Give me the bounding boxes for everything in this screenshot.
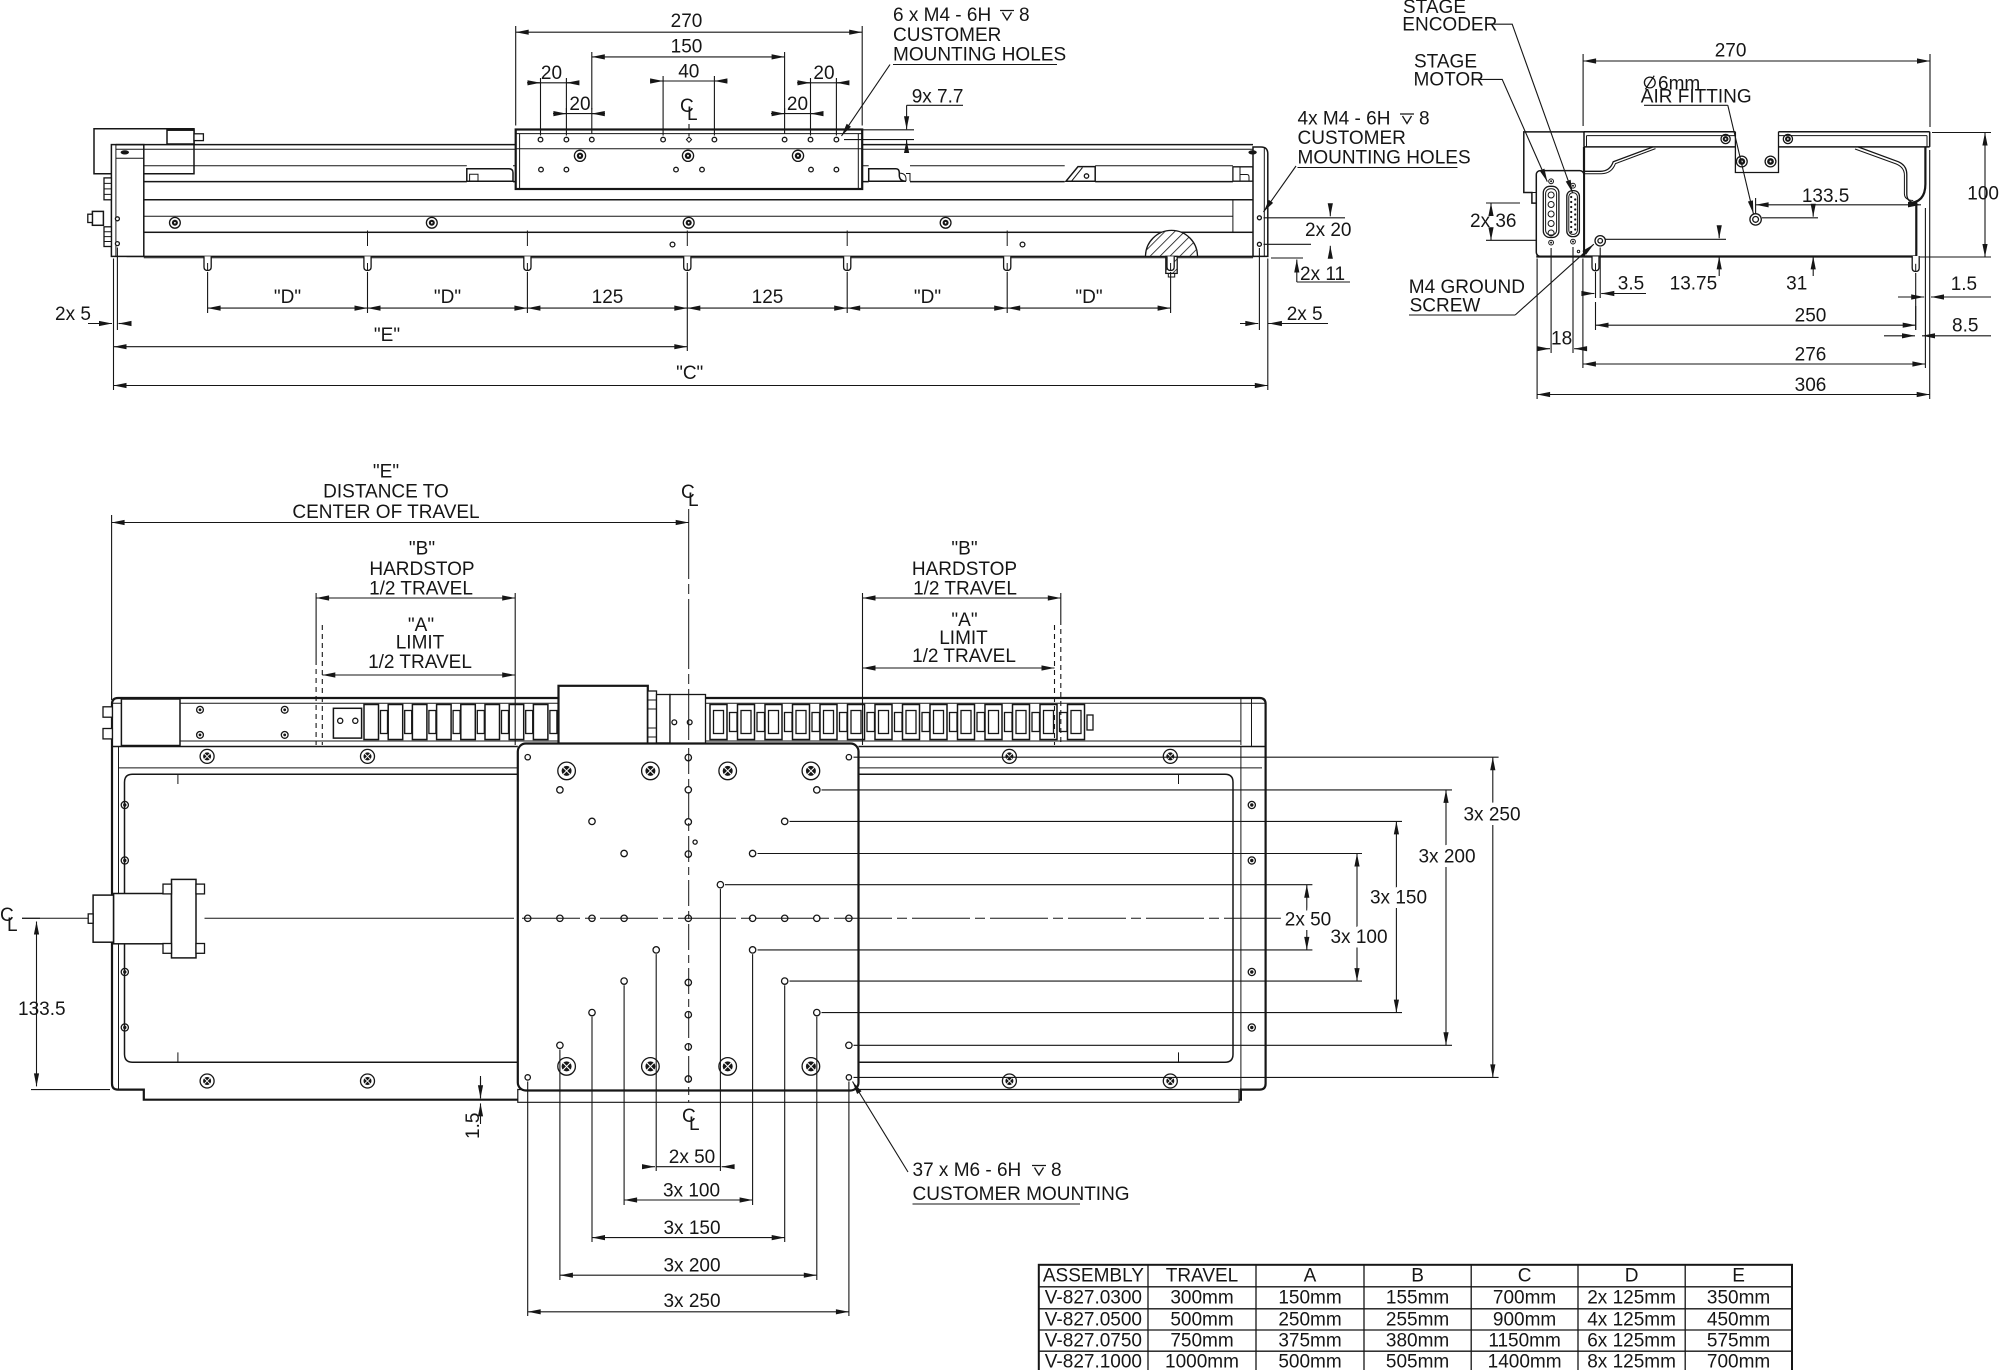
svg-text:750mm: 750mm bbox=[1170, 1331, 1233, 1352]
svg-text:900mm: 900mm bbox=[1493, 1309, 1556, 1330]
svg-text:31: 31 bbox=[1786, 274, 1807, 295]
svg-text:ENCODER: ENCODER bbox=[1402, 15, 1497, 36]
svg-text:AIR FITTING: AIR FITTING bbox=[1641, 87, 1752, 108]
svg-text:2x 20: 2x 20 bbox=[1305, 220, 1351, 241]
svg-text:500mm: 500mm bbox=[1278, 1351, 1341, 1370]
svg-text:155mm: 155mm bbox=[1386, 1288, 1449, 1309]
svg-text:100: 100 bbox=[1967, 184, 1999, 205]
svg-text:V-827.0500: V-827.0500 bbox=[1045, 1309, 1142, 1330]
svg-text:L: L bbox=[7, 915, 18, 936]
svg-text:MOTOR: MOTOR bbox=[1414, 70, 1484, 91]
svg-text:133.5: 133.5 bbox=[18, 999, 66, 1020]
svg-text:700mm: 700mm bbox=[1493, 1288, 1556, 1309]
svg-text:1400mm: 1400mm bbox=[1488, 1351, 1562, 1370]
svg-text:1/2 TRAVEL: 1/2 TRAVEL bbox=[912, 646, 1016, 667]
svg-text:1.5: 1.5 bbox=[463, 1113, 484, 1139]
svg-text:V-827.0300: V-827.0300 bbox=[1045, 1288, 1142, 1309]
svg-text:"E": "E" bbox=[374, 325, 400, 346]
svg-text:6 x M4 - 6H: 6 x M4 - 6H bbox=[893, 5, 991, 26]
svg-text:276: 276 bbox=[1795, 345, 1827, 366]
svg-text:20: 20 bbox=[541, 63, 562, 84]
svg-text:4x M4 - 6H: 4x M4 - 6H bbox=[1298, 109, 1391, 130]
svg-text:500mm: 500mm bbox=[1170, 1309, 1233, 1330]
svg-text:3x 250: 3x 250 bbox=[1463, 805, 1520, 826]
svg-text:"C": "C" bbox=[676, 363, 703, 384]
svg-text:L: L bbox=[687, 104, 698, 125]
svg-text:8.5: 8.5 bbox=[1952, 316, 1978, 337]
svg-text:9x 7.7: 9x 7.7 bbox=[912, 87, 964, 108]
svg-text:250: 250 bbox=[1795, 306, 1827, 327]
svg-text:TRAVEL: TRAVEL bbox=[1166, 1266, 1239, 1287]
svg-text:306: 306 bbox=[1795, 375, 1827, 396]
svg-text:DISTANCE TO: DISTANCE TO bbox=[323, 482, 449, 503]
svg-text:2x 5: 2x 5 bbox=[55, 304, 91, 325]
svg-text:A: A bbox=[1304, 1266, 1317, 1287]
svg-text:20: 20 bbox=[787, 94, 808, 115]
svg-text:505mm: 505mm bbox=[1386, 1351, 1449, 1370]
svg-text:8: 8 bbox=[1419, 109, 1430, 130]
svg-text:CENTER OF TRAVEL: CENTER OF TRAVEL bbox=[292, 502, 479, 523]
svg-text:3x 200: 3x 200 bbox=[663, 1256, 720, 1277]
svg-text:LIMIT: LIMIT bbox=[396, 633, 445, 654]
svg-text:"B": "B" bbox=[951, 539, 977, 560]
svg-text:575mm: 575mm bbox=[1707, 1331, 1770, 1352]
svg-text:3.5: 3.5 bbox=[1618, 274, 1644, 295]
svg-text:133.5: 133.5 bbox=[1802, 186, 1850, 207]
svg-text:3x 150: 3x 150 bbox=[1370, 888, 1427, 909]
svg-text:1/2 TRAVEL: 1/2 TRAVEL bbox=[368, 652, 472, 673]
svg-text:350mm: 350mm bbox=[1707, 1288, 1770, 1309]
svg-text:255mm: 255mm bbox=[1386, 1309, 1449, 1330]
svg-text:300mm: 300mm bbox=[1170, 1288, 1233, 1309]
svg-text:2x 5: 2x 5 bbox=[1287, 304, 1323, 325]
svg-text:MOUNTING HOLES: MOUNTING HOLES bbox=[893, 45, 1066, 66]
svg-text:HARDSTOP: HARDSTOP bbox=[912, 559, 1017, 580]
svg-text:3x 200: 3x 200 bbox=[1418, 847, 1475, 868]
svg-text:SCREW: SCREW bbox=[1410, 296, 1481, 317]
svg-text:4x 125mm: 4x 125mm bbox=[1587, 1309, 1676, 1330]
svg-text:150: 150 bbox=[671, 37, 703, 58]
svg-text:"D": "D" bbox=[914, 287, 941, 308]
svg-text:B: B bbox=[1411, 1266, 1424, 1287]
svg-text:125: 125 bbox=[592, 287, 624, 308]
svg-text:"D": "D" bbox=[274, 287, 301, 308]
svg-text:6x 125mm: 6x 125mm bbox=[1587, 1331, 1676, 1352]
svg-text:"E": "E" bbox=[373, 462, 399, 483]
svg-text:D: D bbox=[1625, 1266, 1639, 1287]
svg-text:8: 8 bbox=[1019, 5, 1030, 26]
svg-text:1/2 TRAVEL: 1/2 TRAVEL bbox=[913, 579, 1017, 600]
svg-text:450mm: 450mm bbox=[1707, 1309, 1770, 1330]
svg-text:270: 270 bbox=[1715, 41, 1747, 62]
svg-text:1.5: 1.5 bbox=[1951, 274, 1977, 295]
svg-text:375mm: 375mm bbox=[1278, 1331, 1341, 1352]
svg-text:"B": "B" bbox=[409, 539, 435, 560]
svg-text:270: 270 bbox=[671, 11, 703, 32]
svg-text:MOUNTING HOLES: MOUNTING HOLES bbox=[1298, 148, 1471, 169]
svg-text:V-827.1000: V-827.1000 bbox=[1045, 1351, 1142, 1370]
svg-text:3x 150: 3x 150 bbox=[663, 1218, 720, 1239]
svg-text:ASSEMBLY: ASSEMBLY bbox=[1043, 1266, 1144, 1287]
svg-text:2x 50: 2x 50 bbox=[669, 1147, 715, 1168]
svg-text:3x 250: 3x 250 bbox=[663, 1291, 720, 1312]
svg-text:125: 125 bbox=[752, 287, 784, 308]
svg-text:8: 8 bbox=[1051, 1160, 1062, 1181]
svg-text:3x 100: 3x 100 bbox=[1330, 927, 1387, 948]
svg-text:700mm: 700mm bbox=[1707, 1351, 1770, 1370]
svg-text:CUSTOMER: CUSTOMER bbox=[1298, 128, 1406, 149]
svg-text:1150mm: 1150mm bbox=[1488, 1331, 1561, 1352]
svg-text:250mm: 250mm bbox=[1278, 1309, 1341, 1330]
svg-text:V-827.0750: V-827.0750 bbox=[1045, 1331, 1142, 1352]
svg-text:HARDSTOP: HARDSTOP bbox=[369, 559, 474, 580]
svg-text:1/2 TRAVEL: 1/2 TRAVEL bbox=[369, 579, 473, 600]
svg-text:37 x M6 - 6H: 37 x M6 - 6H bbox=[913, 1160, 1022, 1181]
svg-text:"D": "D" bbox=[434, 287, 461, 308]
svg-text:1000mm: 1000mm bbox=[1165, 1351, 1239, 1370]
svg-text:CUSTOMER: CUSTOMER bbox=[893, 25, 1001, 46]
svg-text:2x 50: 2x 50 bbox=[1285, 910, 1331, 931]
svg-text:8x 125mm: 8x 125mm bbox=[1587, 1351, 1676, 1370]
svg-text:18: 18 bbox=[1551, 329, 1572, 350]
svg-text:20: 20 bbox=[569, 94, 590, 115]
svg-text:L: L bbox=[688, 490, 699, 511]
svg-text:2x 11: 2x 11 bbox=[1300, 264, 1345, 285]
svg-text:2x 125mm: 2x 125mm bbox=[1587, 1288, 1676, 1309]
svg-text:L: L bbox=[689, 1114, 700, 1135]
svg-text:E: E bbox=[1732, 1266, 1745, 1287]
svg-text:2x 36: 2x 36 bbox=[1470, 211, 1516, 232]
svg-text:380mm: 380mm bbox=[1386, 1331, 1449, 1352]
svg-text:"D": "D" bbox=[1075, 287, 1102, 308]
svg-text:C: C bbox=[1518, 1266, 1532, 1287]
svg-text:13.75: 13.75 bbox=[1670, 274, 1718, 295]
svg-text:150mm: 150mm bbox=[1278, 1288, 1341, 1309]
svg-text:40: 40 bbox=[678, 62, 699, 83]
svg-text:3x 100: 3x 100 bbox=[663, 1181, 720, 1202]
svg-text:20: 20 bbox=[813, 63, 834, 84]
svg-text:CUSTOMER MOUNTING: CUSTOMER MOUNTING bbox=[913, 1184, 1130, 1205]
